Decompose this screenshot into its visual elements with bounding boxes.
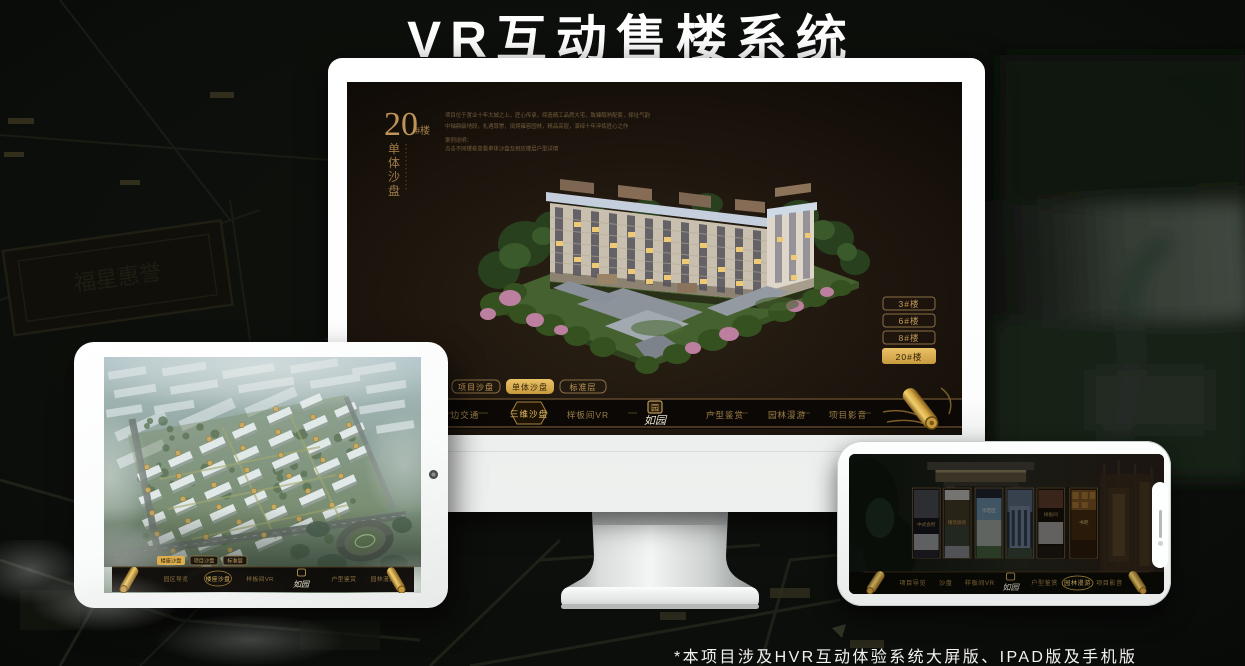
svg-text:#楼: #楼 — [415, 124, 430, 137]
svg-text:6#楼: 6#楼 — [899, 316, 920, 326]
svg-text:单: 单 — [388, 142, 400, 156]
svg-text:边交通: 边交通 — [451, 410, 480, 420]
svg-text:盘: 盘 — [388, 183, 400, 198]
svg-text:标准层: 标准层 — [570, 382, 597, 392]
svg-text:点击不同楼栋查看单体沙盘及相应楼层户型详情: 点击不同楼栋查看单体沙盘及相应楼层户型详情 — [445, 145, 559, 153]
svg-text:3#楼: 3#楼 — [899, 299, 920, 309]
svg-text:如园: 如园 — [644, 414, 668, 427]
svg-text:8#楼: 8#楼 — [899, 333, 920, 343]
svg-text:体: 体 — [388, 156, 400, 170]
svg-text:项目沙盘: 项目沙盘 — [458, 382, 494, 392]
svg-text:中轴鼎级地段，礼遇尊崇，阔境雍容园林，精品高层，演绎十年淬炼: 中轴鼎级地段，礼遇尊崇，阔境雍容园林，精品高层，演绎十年淬炼匠心之作 — [445, 122, 629, 130]
svg-text:园林漫游: 园林漫游 — [768, 410, 806, 420]
svg-text:沙: 沙 — [388, 170, 400, 184]
svg-text:户型鉴赏: 户型鉴赏 — [706, 410, 744, 420]
svg-text:样板间VR: 样板间VR — [567, 410, 609, 420]
svg-text:20#楼: 20#楼 — [896, 352, 923, 362]
svg-text:园: 园 — [651, 404, 659, 413]
svg-text:单体沙盘: 单体沙盘 — [512, 382, 548, 392]
svg-text:20: 20 — [384, 106, 418, 143]
svg-text:三维沙盘: 三维沙盘 — [510, 409, 548, 419]
svg-text:项目影音: 项目影音 — [829, 410, 867, 420]
svg-text:项目位于置业十年大城之上，匠心传承，缔造精工品质大宅，致臻醇: 项目位于置业十年大城之上，匠心传承，缔造精工品质大宅，致臻醇熟配套，择址气韵 — [445, 111, 650, 119]
svg-text:案例说明：: 案例说明： — [445, 136, 472, 144]
